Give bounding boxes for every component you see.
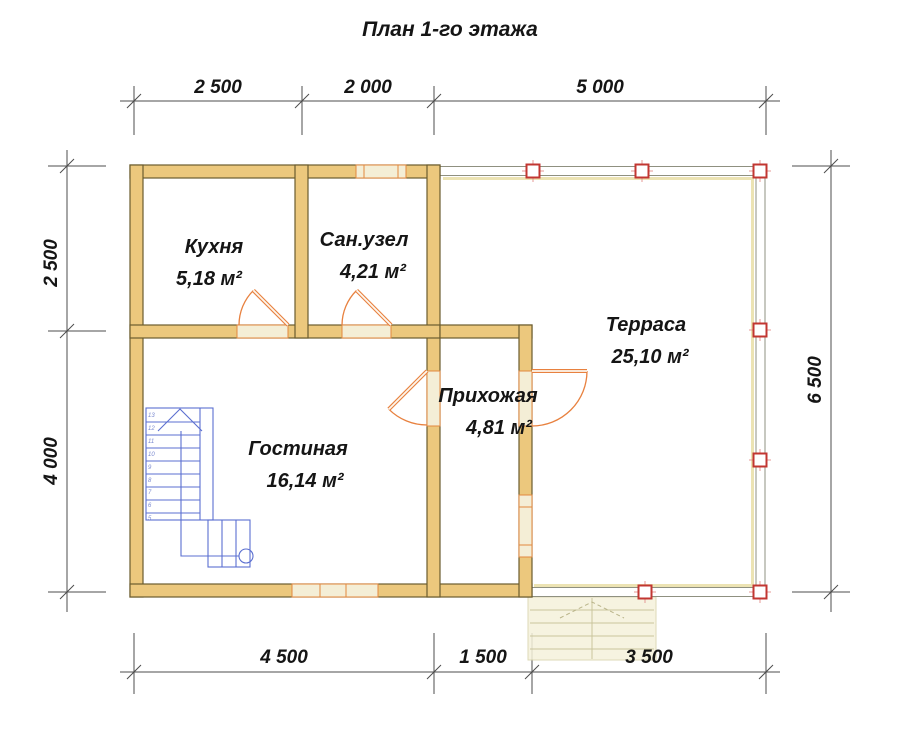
room-label-living: Гостиная 16,14 м²: [248, 433, 348, 497]
wall-kitchen-bath: [295, 165, 308, 338]
wall-left: [130, 165, 143, 597]
dim-right-1: 6 500: [805, 356, 827, 404]
column-marker: [527, 165, 540, 178]
bath-door-swing: [342, 290, 391, 325]
kitchen-door-opening: [237, 325, 288, 338]
room-name: Сан.узел: [320, 229, 409, 251]
living-window: [292, 584, 378, 597]
floor-plan-page: План 1-го этажа 2 500 2 000 5 000 4 500 …: [0, 0, 900, 733]
room-area: 4,21 м²: [338, 256, 409, 288]
room-label-hallway: Прихожая 4,81 м²: [438, 380, 537, 444]
floor-plan-drawing: [0, 0, 900, 733]
hall-window: [519, 495, 532, 557]
dim-top-3: 5 000: [576, 77, 624, 99]
bath-door-opening: [342, 325, 391, 338]
hall-right-door-swing: [532, 371, 587, 426]
room-name: Прихожая: [438, 385, 537, 407]
dim-top-1: 2 500: [194, 77, 242, 99]
column-marker: [754, 454, 767, 467]
terrace-columns: [522, 160, 771, 603]
room-label-terrace: Терраса 25,10 м²: [603, 309, 688, 373]
wall-hall-top: [440, 325, 532, 338]
stairs-newel-post: [239, 549, 253, 563]
stair-step-numbers: 13 12 11 10 9 8 7 6 5: [148, 410, 155, 526]
column-marker: [636, 165, 649, 178]
stairs-up-arrow: [158, 409, 202, 431]
stairs-rail: [181, 431, 239, 556]
column-marker: [754, 324, 767, 337]
room-area: 5,18 м²: [175, 263, 243, 295]
room-area: 25,10 м²: [611, 341, 688, 373]
room-area: 16,14 м²: [262, 465, 348, 497]
column-marker: [754, 586, 767, 599]
stairs-winders: [208, 520, 250, 567]
hall-left-door-swing: [389, 371, 427, 425]
room-name: Кухня: [185, 236, 243, 258]
staircase: [146, 408, 253, 567]
dim-bottom-1: 4 500: [260, 647, 308, 669]
room-name: Гостиная: [248, 438, 348, 460]
dim-left-2: 4 000: [41, 437, 63, 485]
kitchen-door-swing: [239, 290, 288, 325]
dim-bottom-2: 1 500: [459, 647, 507, 669]
page-title: План 1-го этажа: [362, 18, 538, 42]
dim-top-2: 2 000: [344, 77, 392, 99]
room-area: 4,81 м²: [460, 412, 537, 444]
column-marker: [639, 586, 652, 599]
dim-bottom-3: 3 500: [625, 647, 673, 669]
room-label-kitchen: Кухня 5,18 м²: [185, 231, 243, 295]
dim-left-1: 2 500: [41, 239, 63, 287]
room-name: Терраса: [606, 314, 686, 336]
room-label-bathroom: Сан.узел 4,21 м²: [320, 224, 409, 288]
column-marker: [754, 165, 767, 178]
